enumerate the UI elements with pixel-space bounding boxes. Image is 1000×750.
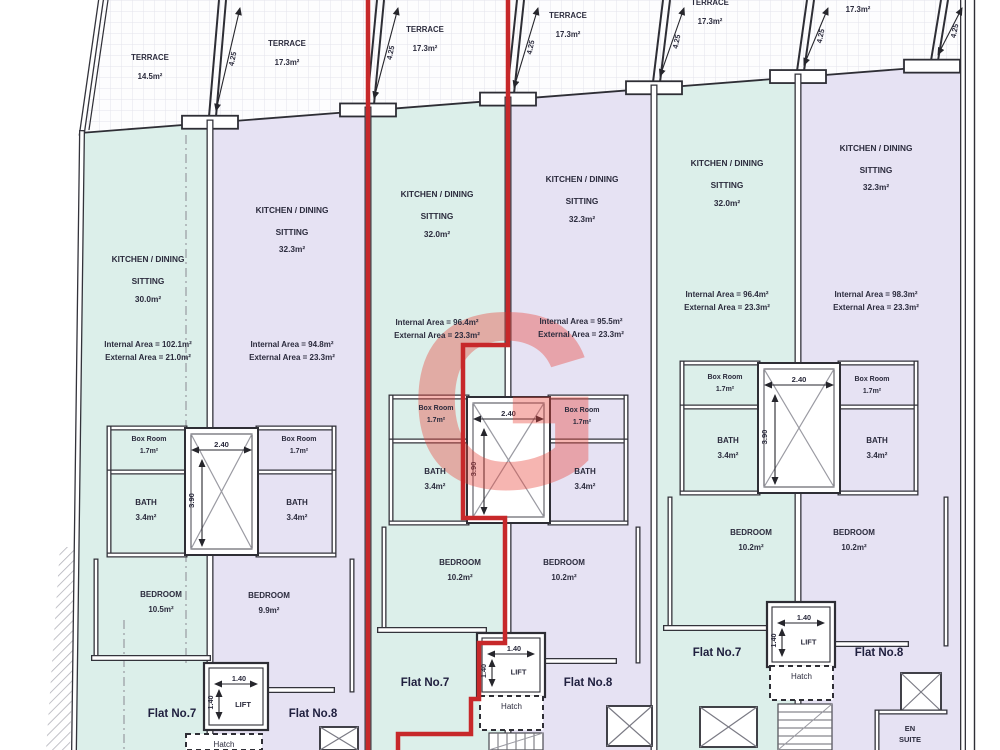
internal-area: Internal Area = 98.3m²	[834, 290, 917, 299]
internal-area: Internal Area = 95.5m²	[539, 317, 622, 326]
internal-area: Internal Area = 102.1m²	[104, 340, 192, 349]
room-area: 32.0m²	[714, 198, 741, 208]
room-label: BATH	[135, 498, 157, 507]
room-area: 10.5m²	[148, 605, 174, 614]
terrace-label: TERRACE	[131, 53, 169, 62]
shaft-width-dim: 2.40	[214, 440, 229, 449]
floor-plan-canvas: 2.403.901.401.40LIFTHatch2.403.901.401.4…	[0, 0, 1000, 750]
shaft-height-dim: 3.90	[760, 430, 769, 445]
lift-label: LIFT	[801, 637, 817, 646]
room-label: BATH	[574, 467, 596, 476]
room-label: SITTING	[711, 180, 744, 190]
room-area: 32.3m²	[863, 182, 890, 192]
room-area: 9.9m²	[259, 606, 280, 615]
room-area: 10.2m²	[841, 543, 867, 552]
room-label: BATH	[424, 467, 446, 476]
room-label: Box Room	[565, 407, 600, 414]
room-area: 3.4m²	[287, 513, 308, 522]
internal-area: Internal Area = 96.4m²	[395, 318, 478, 327]
floor-plan: 2.403.901.401.40LIFTHatch2.403.901.401.4…	[0, 0, 1000, 750]
room-label: Box Room	[419, 405, 454, 412]
flat-number: Flat No.7	[693, 647, 742, 659]
room-area: 3.4m²	[425, 482, 446, 491]
room-label: KITCHEN / DINING	[256, 205, 329, 215]
lift-height-dim: 1.40	[206, 695, 215, 709]
terrace-area: 17.3m²	[556, 30, 581, 39]
room-area: 1.7m²	[290, 448, 309, 455]
room-area: 3.4m²	[136, 513, 157, 522]
room-label: SITTING	[421, 211, 454, 221]
room-area: 1.7m²	[716, 386, 735, 393]
room-area: 3.4m²	[575, 482, 596, 491]
room-area: 3.4m²	[867, 451, 888, 460]
room-label: BEDROOM	[248, 591, 290, 600]
room-label: BEDROOM	[140, 590, 182, 599]
room-label: KITCHEN / DINING	[691, 158, 764, 168]
room-label: SITTING	[566, 196, 599, 206]
room-area: 10.2m²	[738, 543, 764, 552]
lift-width-dim: 1.40	[797, 613, 811, 622]
en-suite-label: EN	[905, 724, 915, 733]
lift-height-dim: 1.40	[769, 633, 778, 647]
external-area: External Area = 21.0m²	[105, 353, 191, 362]
flat-number: Flat No.8	[855, 647, 904, 659]
shaft-width-dim: 2.40	[792, 375, 807, 384]
room-label: BATH	[286, 498, 308, 507]
flat-number: Flat No.7	[148, 708, 197, 720]
room-label: SITTING	[860, 165, 893, 175]
terrace-area: 17.3m²	[275, 58, 300, 67]
room-label: BATH	[717, 436, 739, 445]
room-area: 1.7m²	[140, 448, 159, 455]
en-suite-label: SUITE	[899, 735, 921, 744]
room-label: SITTING	[132, 276, 165, 286]
room-area: 1.7m²	[427, 417, 446, 424]
room-label: Box Room	[708, 374, 743, 381]
hatch-label: Hatch	[501, 702, 522, 711]
flat-number: Flat No.7	[401, 677, 450, 689]
hatch-label: Hatch	[791, 672, 812, 681]
room-area: 10.2m²	[551, 573, 577, 582]
room-area: 32.3m²	[279, 244, 306, 254]
room-label: BATH	[866, 436, 888, 445]
room-area: 32.0m²	[424, 229, 451, 239]
room-label: KITCHEN / DINING	[546, 174, 619, 184]
external-area: External Area = 23.3m²	[394, 331, 480, 340]
external-area: External Area = 23.3m²	[833, 303, 919, 312]
terrace-area: 14.5m²	[138, 72, 163, 81]
room-label: BEDROOM	[730, 528, 772, 537]
internal-area: Internal Area = 96.4m²	[685, 290, 768, 299]
flat-number: Flat No.8	[289, 708, 338, 720]
room-area: 32.3m²	[569, 214, 596, 224]
lift-label: LIFT	[511, 668, 527, 677]
external-area: External Area = 23.3m²	[249, 353, 335, 362]
terrace-area: 17.3m²	[846, 5, 871, 14]
room-label: Box Room	[855, 376, 890, 383]
room-label: SITTING	[276, 227, 309, 237]
room-label: KITCHEN / DINING	[840, 143, 913, 153]
room-label: Box Room	[282, 436, 317, 443]
room-label: BEDROOM	[543, 558, 585, 567]
internal-area: Internal Area = 94.8m²	[250, 340, 333, 349]
lift-label: LIFT	[235, 700, 251, 709]
room-area: 1.7m²	[573, 419, 592, 426]
room-label: BEDROOM	[833, 528, 875, 537]
front-wall-pier	[904, 60, 960, 73]
lift-width-dim: 1.40	[507, 644, 521, 653]
terrace-label: TERRACE	[549, 11, 587, 20]
external-area: External Area = 23.3m²	[684, 303, 770, 312]
flat-number: Flat No.8	[564, 677, 613, 689]
room-label: BEDROOM	[439, 558, 481, 567]
room-label: KITCHEN / DINING	[401, 189, 474, 199]
room-label: Box Room	[132, 436, 167, 443]
shaft-height-dim: 3.90	[187, 493, 196, 508]
room-area: 3.4m²	[718, 451, 739, 460]
terrace-label: TERRACE	[406, 25, 444, 34]
terrace-area: 17.3m²	[698, 17, 723, 26]
room-label: KITCHEN / DINING	[112, 254, 185, 264]
external-area: External Area = 23.3m²	[538, 330, 624, 339]
room-area: 30.0m²	[135, 294, 162, 304]
room-area: 10.2m²	[447, 573, 473, 582]
terrace-area: 17.3m²	[413, 44, 438, 53]
room-area: 1.7m²	[863, 388, 882, 395]
terrace-label: TERRACE	[268, 39, 306, 48]
lift-width-dim: 1.40	[232, 674, 246, 683]
hatch-label: Hatch	[214, 740, 235, 749]
terrace-label: TERRACE	[691, 0, 729, 7]
